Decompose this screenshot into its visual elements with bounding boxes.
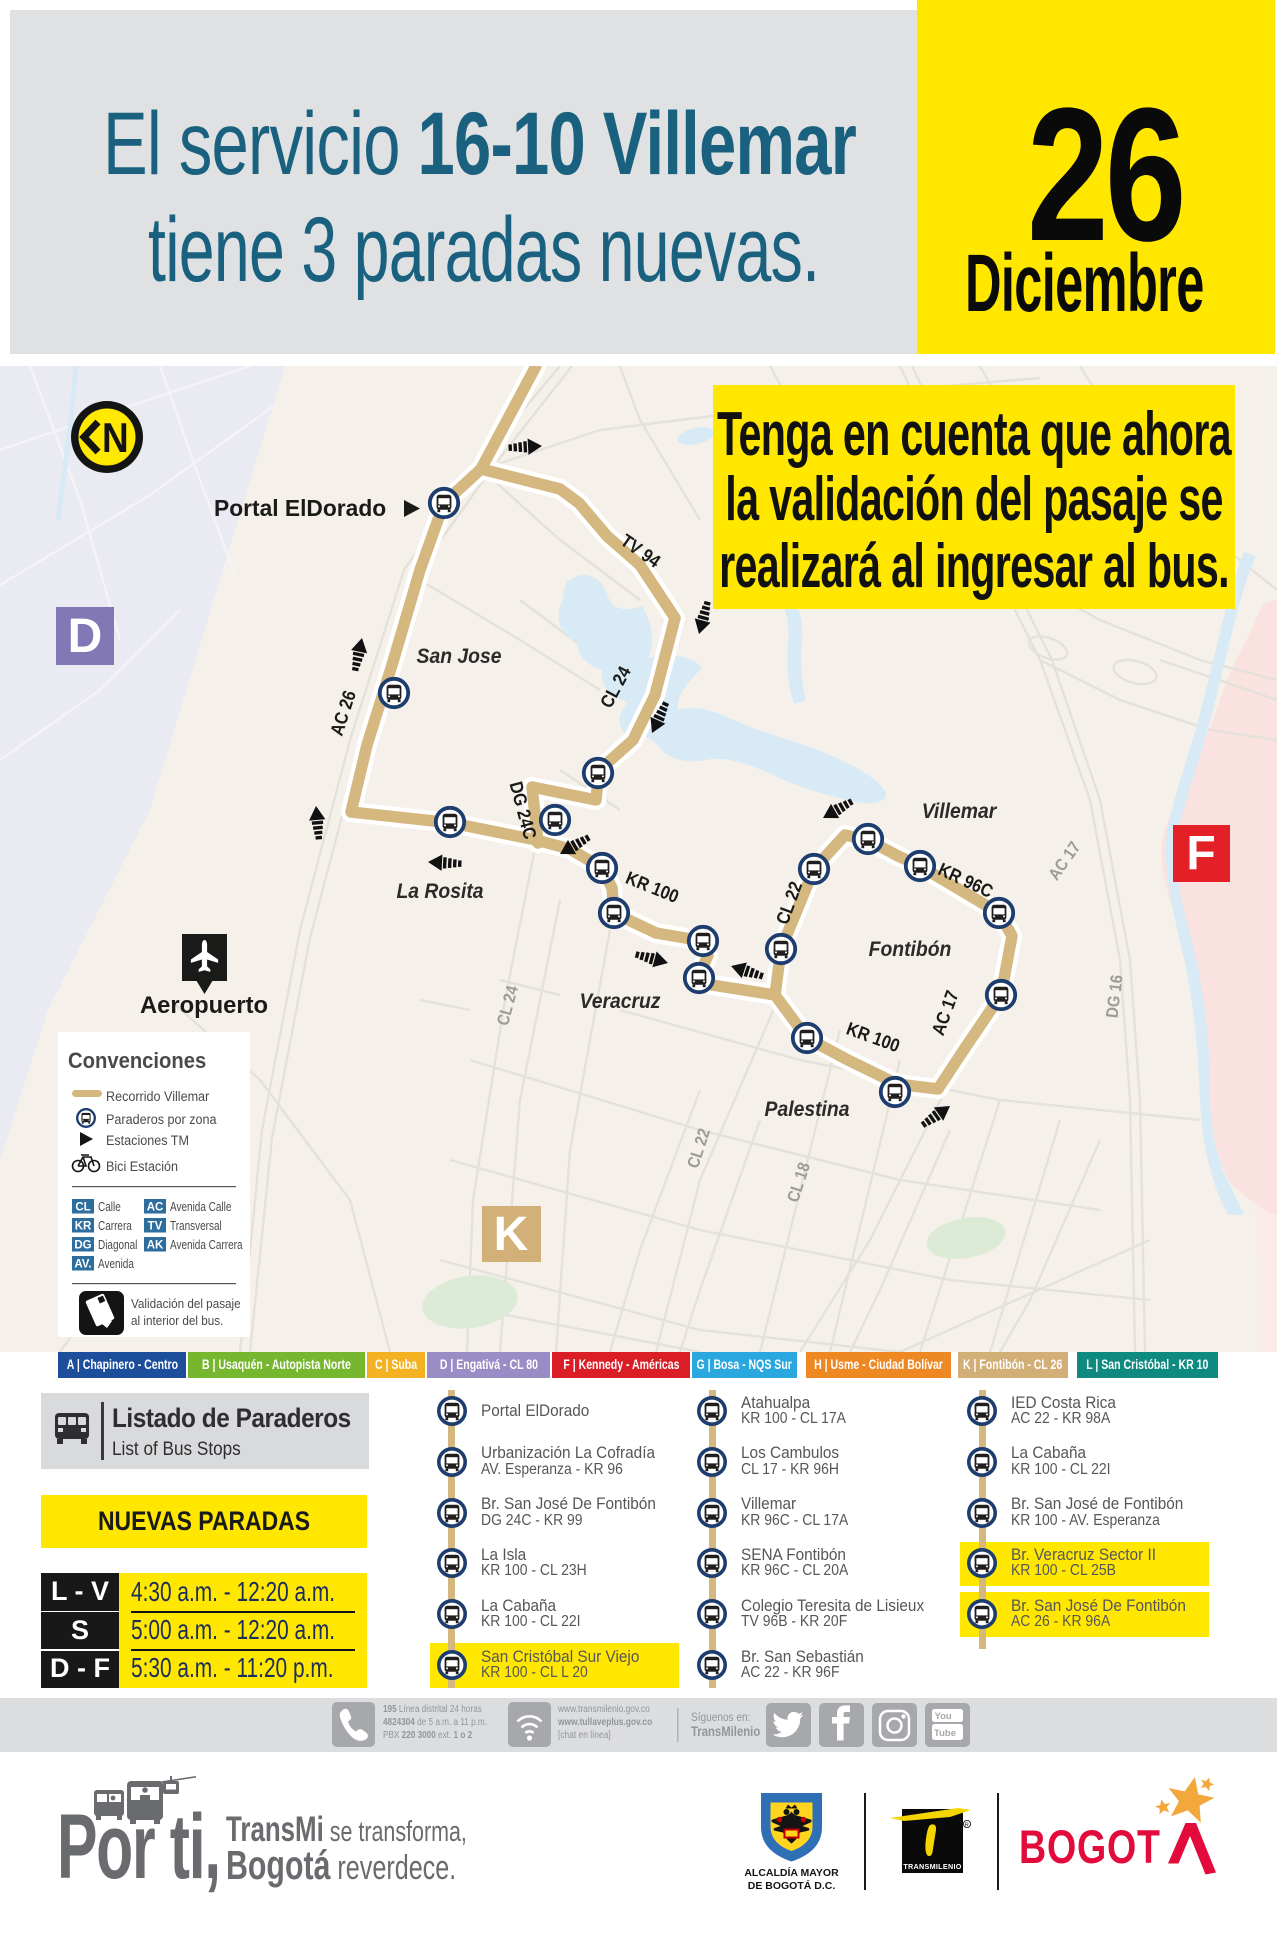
svg-text:TRANSMILENIO: TRANSMILENIO xyxy=(903,1862,961,1871)
svg-text:AC: AC xyxy=(147,1202,164,1214)
svg-text:ALCALDÍA MAYOR: ALCALDÍA MAYOR xyxy=(744,1866,839,1879)
svg-text:Convenciones: Convenciones xyxy=(68,1049,206,1073)
svg-text:PBX 220 3000 ext. 1 o 2: PBX 220 3000 ext. 1 o 2 xyxy=(383,1728,472,1740)
svg-text:[chat en línea]: [chat en línea] xyxy=(558,1729,611,1741)
svg-text:Bogotá reverdece.: Bogotá reverdece. xyxy=(226,1841,456,1888)
svg-text:TV: TV xyxy=(148,1221,163,1233)
svg-text:4824304 de 5 a.m. a 11 p.m.: 4824304 de 5 a.m. a 11 p.m. xyxy=(383,1715,487,1727)
svg-text:DG: DG xyxy=(74,1240,91,1252)
svg-text:N: N xyxy=(102,415,129,462)
svg-text:Estaciones TM: Estaciones TM xyxy=(106,1132,189,1148)
svg-text:D: D xyxy=(68,610,103,663)
svg-text:CL: CL xyxy=(75,1202,90,1214)
svg-text:Diagonal: Diagonal xyxy=(98,1239,137,1252)
svg-text:Fontibón: Fontibón xyxy=(869,937,952,961)
svg-text:Tube: Tube xyxy=(934,1728,956,1739)
svg-text:Síguenos en:: Síguenos en: xyxy=(691,1711,750,1724)
svg-text:F: F xyxy=(1186,827,1215,880)
svg-text:195 Línea distrital 24 horas: 195 Línea distrital 24 horas xyxy=(383,1702,482,1714)
svg-text:Palestina: Palestina xyxy=(765,1097,850,1121)
svg-text:www.tullaveplus.gov.co: www.tullaveplus.gov.co xyxy=(557,1716,652,1728)
svg-text:Villemar: Villemar xyxy=(922,799,998,823)
svg-text:AK: AK xyxy=(147,1240,164,1252)
svg-text:Recorrido Villemar: Recorrido Villemar xyxy=(106,1088,210,1104)
svg-text:Aeropuerto: Aeropuerto xyxy=(140,992,268,1019)
svg-text:Bici Estación: Bici Estación xyxy=(106,1158,178,1174)
svg-text:BOGOT: BOGOT xyxy=(1019,1821,1161,1874)
svg-text:Validación del pasaje: Validación del pasaje xyxy=(131,1296,241,1311)
svg-text:Veracruz: Veracruz xyxy=(580,989,662,1013)
svg-text:la validación del pasaje se: la validación del pasaje se xyxy=(725,465,1222,534)
svg-text:realizará al ingresar al bus.: realizará al ingresar al bus. xyxy=(719,532,1229,601)
svg-text:R: R xyxy=(965,1823,969,1829)
svg-text:You: You xyxy=(935,1711,952,1722)
svg-text:AV.: AV. xyxy=(74,1259,91,1271)
svg-text:Tenga en cuenta que ahora: Tenga en cuenta que ahora xyxy=(717,400,1232,469)
svg-text:Calle: Calle xyxy=(98,1201,121,1214)
svg-text:Avenida: Avenida xyxy=(98,1258,135,1271)
svg-text:Transversal: Transversal xyxy=(170,1220,222,1233)
svg-text:San Jose: San Jose xyxy=(417,644,502,668)
svg-text:La Rosita: La Rosita xyxy=(396,879,483,903)
svg-text:Portal ElDorado: Portal ElDorado xyxy=(214,495,386,521)
svg-text:KR: KR xyxy=(75,1221,92,1233)
svg-text:Carrera: Carrera xyxy=(98,1220,132,1233)
svg-text:DE BOGOTÁ D.C.: DE BOGOTÁ D.C. xyxy=(748,1879,836,1892)
svg-text:Avenida Calle: Avenida Calle xyxy=(170,1201,231,1214)
svg-text:Paraderos por zona: Paraderos por zona xyxy=(106,1111,217,1127)
svg-text:www.transmilenio.gov.co: www.transmilenio.gov.co xyxy=(557,1703,650,1715)
svg-text:TransMilenio: TransMilenio xyxy=(691,1724,761,1739)
svg-text:Avenida Carrera: Avenida Carrera xyxy=(170,1239,243,1252)
svg-text:K: K xyxy=(494,1208,529,1261)
svg-text:al interior del bus.: al interior del bus. xyxy=(131,1313,223,1328)
